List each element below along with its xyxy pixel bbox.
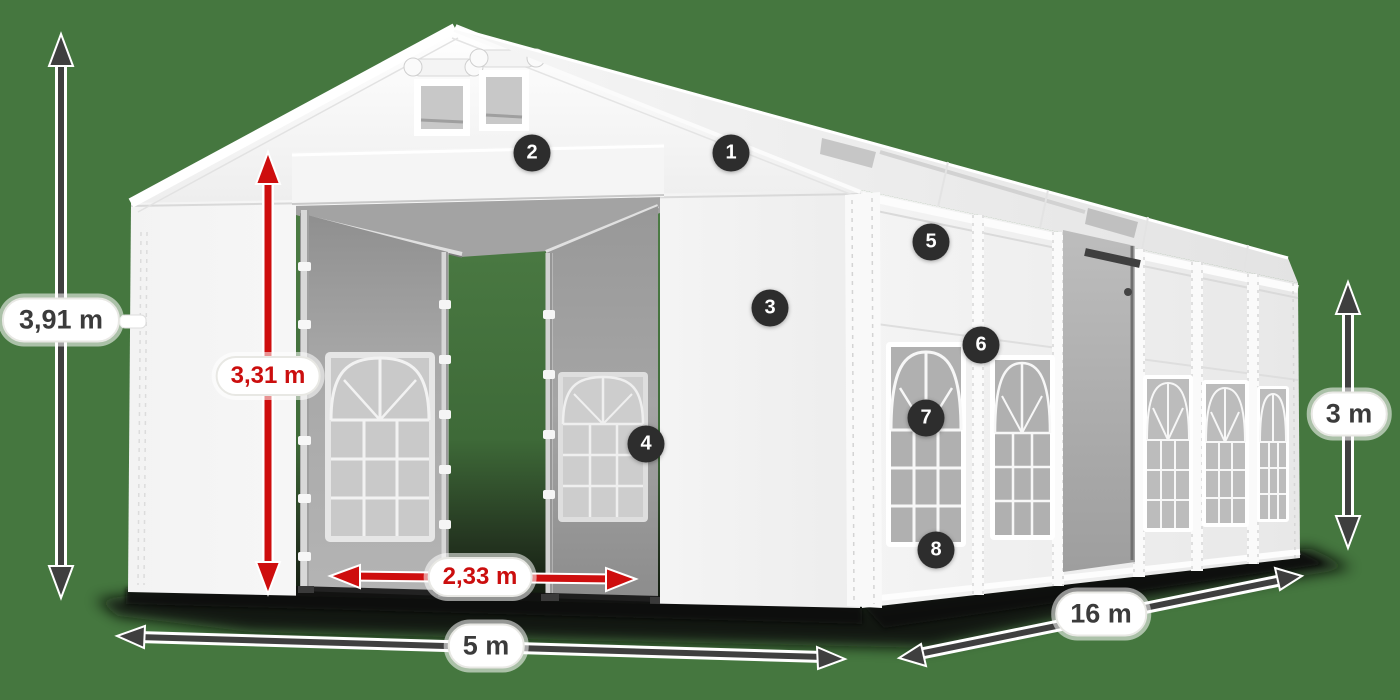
side-window-3	[1143, 375, 1193, 532]
marker-8[interactable]: 8	[918, 532, 955, 569]
side-door-opening	[1063, 230, 1140, 572]
entrance-width-label: 2,33 m	[428, 557, 533, 597]
wall-height-label: 3 m	[1311, 392, 1388, 437]
side-window-4	[1202, 380, 1249, 527]
marker-1[interactable]: 1	[713, 135, 750, 172]
entrance-opening	[296, 190, 664, 604]
marker-7[interactable]: 7	[908, 400, 945, 437]
tent-illustration-canvas	[0, 0, 1400, 700]
marker-6[interactable]: 6	[963, 327, 1000, 364]
strap-buckle	[120, 315, 146, 328]
side-window-1	[886, 342, 966, 547]
tent-dimensions-diagram: 3,91 m 3,31 m 2,33 m 5 m 16 m 3 m 1 2 3 …	[0, 0, 1400, 700]
entrance-header	[292, 143, 664, 206]
corner-column	[845, 192, 882, 608]
marker-4[interactable]: 4	[628, 426, 665, 463]
entrance-right-door	[543, 206, 658, 602]
side-length-label: 16 m	[1055, 592, 1147, 637]
marker-3[interactable]: 3	[752, 290, 789, 327]
marker-5[interactable]: 5	[913, 224, 950, 261]
entrance-left-door	[300, 213, 451, 596]
marker-2[interactable]: 2	[514, 135, 551, 172]
front-width-label: 5 m	[448, 624, 525, 669]
side-window-5	[1257, 386, 1289, 522]
total-height-label: 3,91 m	[2, 298, 120, 343]
entrance-height-label: 3,31 m	[216, 356, 321, 396]
side-window-2	[990, 355, 1055, 540]
